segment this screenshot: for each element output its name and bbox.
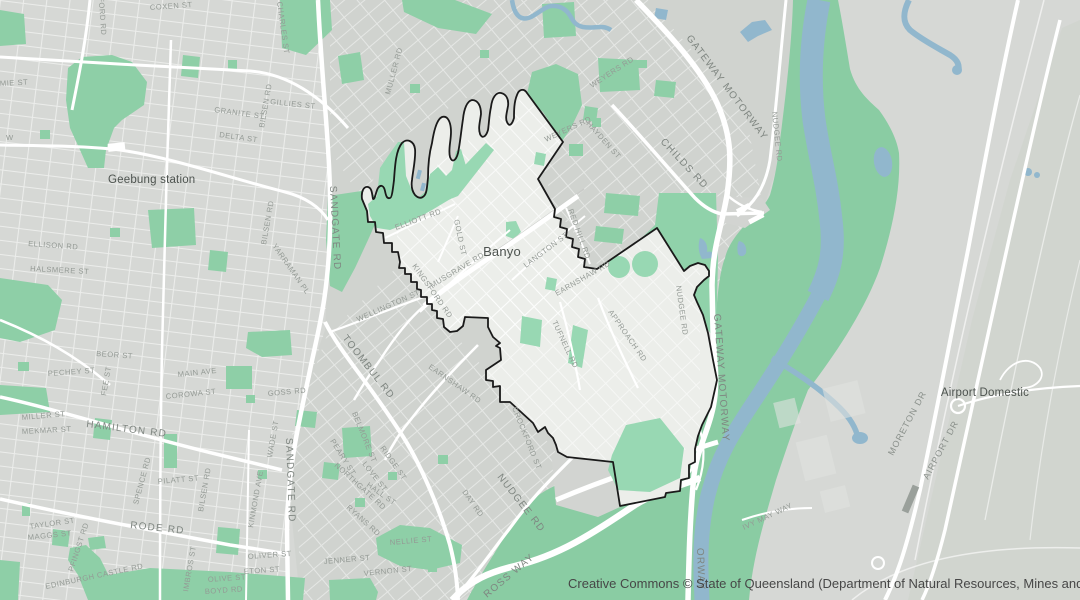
svg-text:W: W bbox=[6, 133, 14, 142]
svg-text:Airport Domestic: Airport Domestic bbox=[941, 387, 1029, 399]
svg-text:Banyo: Banyo bbox=[483, 244, 521, 259]
svg-text:Creative Commons © State of Qu: Creative Commons © State of Queensland (… bbox=[568, 576, 1080, 591]
svg-text:Geebung station: Geebung station bbox=[108, 174, 195, 186]
svg-text:MIE ST: MIE ST bbox=[0, 78, 28, 88]
